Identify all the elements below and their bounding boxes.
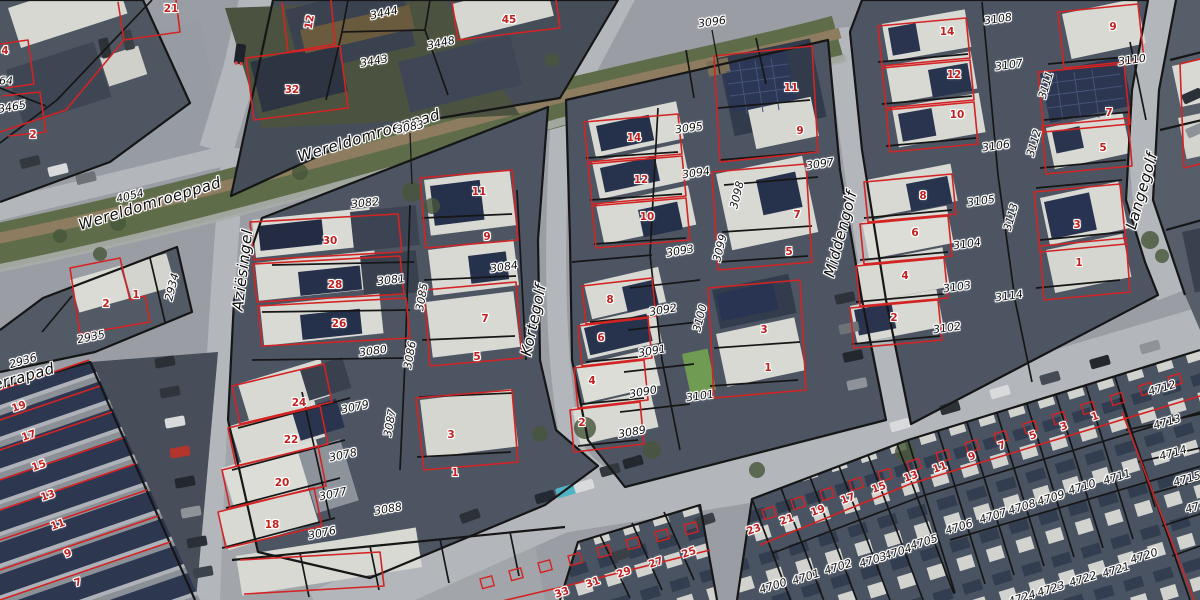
aerial-cadastral-map[interactable]: WereldomroeppadWereldomroeppadAziësingel…: [0, 0, 1200, 600]
aerial-imagery-layer: [0, 0, 1200, 600]
